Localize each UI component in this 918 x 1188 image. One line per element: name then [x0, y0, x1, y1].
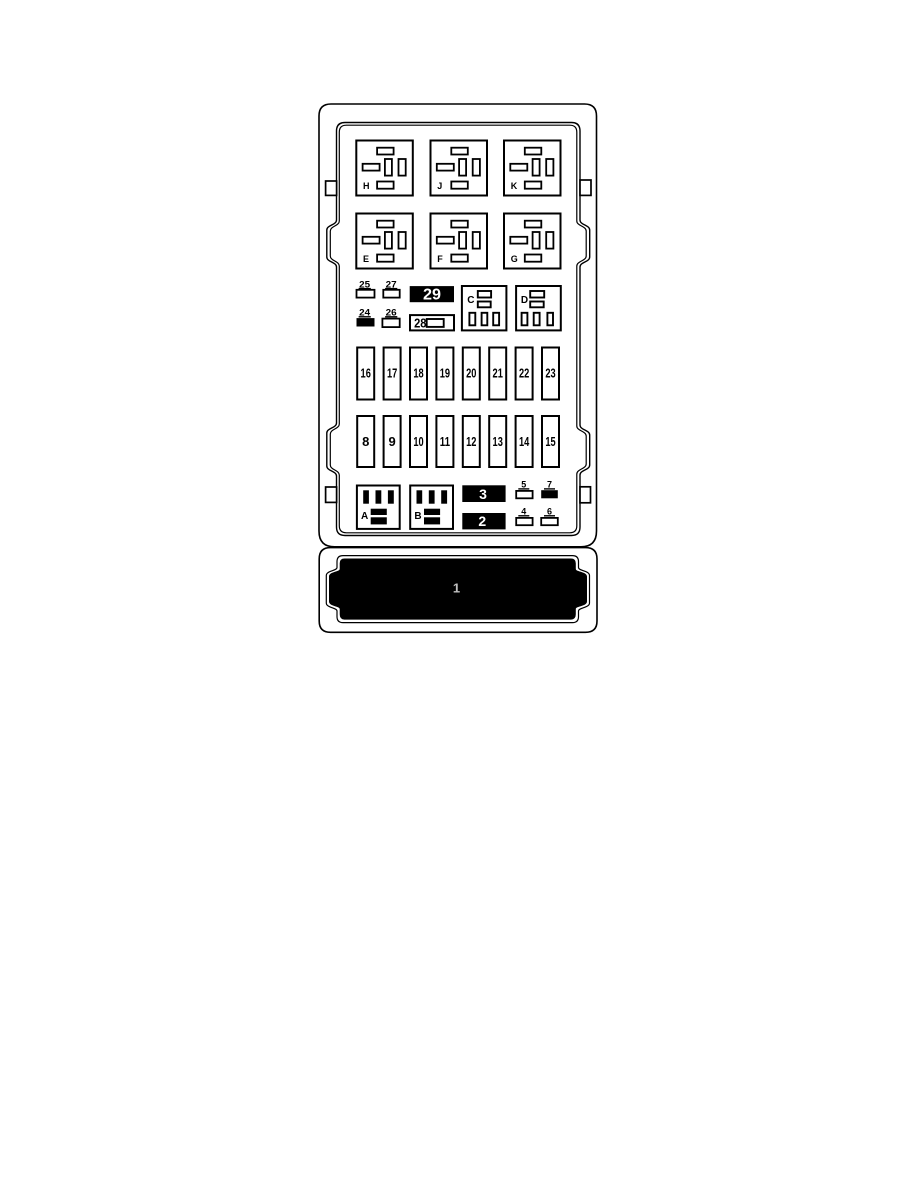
- svg-text:16: 16: [361, 366, 371, 381]
- svg-text:11: 11: [440, 434, 450, 449]
- svg-text:17: 17: [387, 366, 397, 381]
- svg-text:C: C: [467, 295, 474, 306]
- svg-text:7: 7: [547, 480, 552, 490]
- svg-text:18: 18: [413, 366, 423, 381]
- svg-text:3: 3: [479, 486, 487, 502]
- svg-text:29: 29: [423, 287, 441, 304]
- svg-text:4: 4: [521, 506, 526, 516]
- svg-text:14: 14: [519, 434, 530, 449]
- svg-text:5: 5: [521, 480, 526, 490]
- svg-text:23: 23: [545, 366, 555, 381]
- svg-text:12: 12: [466, 434, 476, 449]
- svg-text:13: 13: [493, 434, 503, 449]
- svg-text:20: 20: [466, 366, 476, 381]
- svg-text:19: 19: [440, 366, 450, 381]
- svg-text:1: 1: [453, 580, 460, 595]
- svg-text:10: 10: [413, 434, 423, 449]
- svg-text:G: G: [511, 254, 518, 264]
- svg-text:J: J: [437, 181, 442, 191]
- svg-text:22: 22: [519, 366, 529, 381]
- svg-text:F: F: [437, 254, 443, 264]
- svg-text:B: B: [414, 511, 421, 522]
- svg-text:K: K: [511, 181, 518, 191]
- svg-text:D: D: [521, 295, 528, 306]
- svg-text:15: 15: [545, 434, 555, 449]
- svg-text:H: H: [363, 181, 370, 191]
- svg-text:8: 8: [362, 434, 369, 449]
- svg-text:E: E: [363, 254, 369, 264]
- svg-text:2: 2: [478, 513, 486, 529]
- svg-text:9: 9: [388, 434, 395, 449]
- svg-text:28: 28: [414, 316, 426, 331]
- svg-text:21: 21: [493, 366, 503, 381]
- svg-text:A: A: [361, 511, 368, 522]
- svg-text:6: 6: [547, 506, 552, 516]
